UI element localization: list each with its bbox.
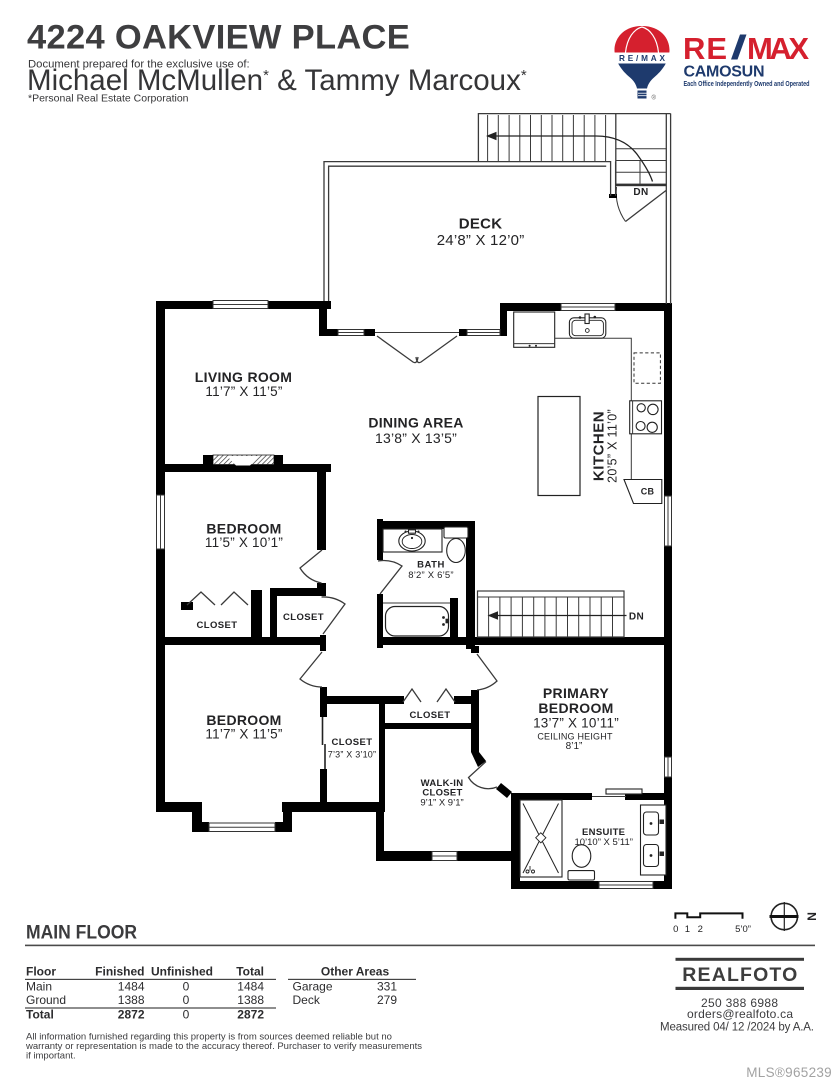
svg-text:N: N — [805, 912, 819, 921]
svg-text:Total: Total — [236, 965, 264, 979]
svg-text:CLOSET: CLOSET — [332, 737, 373, 748]
svg-text:CEILING HEIGHT: CEILING HEIGHT — [537, 732, 613, 742]
svg-text:Floor: Floor — [26, 965, 56, 979]
svg-text:1388: 1388 — [118, 993, 145, 1007]
svg-text:Unfinished: Unfinished — [151, 965, 213, 979]
svg-text:DN: DN — [629, 612, 644, 623]
svg-text:331: 331 — [377, 980, 397, 994]
svg-text:7’3” X 3’10”: 7’3” X 3’10” — [328, 750, 376, 760]
svg-text:MAIN FLOOR: MAIN FLOOR — [26, 923, 137, 944]
svg-text:0: 0 — [183, 980, 190, 994]
svg-text:8’1”: 8’1” — [566, 741, 583, 752]
svg-text:DN: DN — [633, 187, 648, 198]
svg-text:LIVING ROOM: LIVING ROOM — [195, 369, 292, 385]
svg-text:Ground: Ground — [26, 993, 66, 1007]
svg-text:Each Office Independently Owne: Each Office Independently Owned and Oper… — [684, 81, 810, 88]
svg-text:orders@realfoto.ca: orders@realfoto.ca — [687, 1007, 793, 1021]
svg-text:Measured 04/ 12 /2024 by A.A.: Measured 04/ 12 /2024 by A.A. — [660, 1022, 814, 1034]
svg-text:BATH: BATH — [417, 560, 445, 571]
svg-text:REALFOTO: REALFOTO — [682, 964, 797, 986]
svg-text:24’8” X 12’0”: 24’8” X 12’0” — [437, 232, 525, 249]
svg-text:Main: Main — [26, 980, 52, 994]
svg-text:0: 0 — [673, 924, 678, 935]
svg-text:Garage: Garage — [293, 980, 333, 994]
svg-text:1388: 1388 — [237, 993, 264, 1007]
svg-text:®: ® — [652, 95, 657, 102]
svg-text:2872: 2872 — [118, 1008, 145, 1022]
svg-text:11’7” X 11’5”: 11’7” X 11’5” — [205, 727, 282, 742]
svg-text:5’0”: 5’0” — [735, 924, 751, 935]
svg-text:9’1” X 9’1”: 9’1” X 9’1” — [420, 798, 463, 809]
svg-text:MLS®965239: MLS®965239 — [746, 1065, 832, 1080]
svg-text:2: 2 — [698, 924, 703, 935]
svg-text:RE: RE — [683, 31, 727, 66]
svg-text:Other Areas: Other Areas — [321, 965, 390, 979]
svg-text:8’2” X 6’5”: 8’2” X 6’5” — [408, 570, 454, 581]
svg-text:DINING AREA: DINING AREA — [368, 415, 463, 431]
svg-text:11’7” X 11’5”: 11’7” X 11’5” — [205, 384, 282, 399]
svg-text:4224 OAKVIEW PLACE: 4224 OAKVIEW PLACE — [27, 19, 410, 57]
svg-text:13’8” X 13’5”: 13’8” X 13’5” — [375, 430, 457, 446]
svg-text:CLOSET: CLOSET — [197, 620, 238, 631]
svg-text:MAX: MAX — [747, 31, 809, 66]
svg-text:1484: 1484 — [237, 980, 264, 994]
svg-text:Finished: Finished — [95, 965, 144, 979]
svg-text:0: 0 — [183, 1008, 190, 1022]
svg-text:CLOSET: CLOSET — [410, 710, 451, 721]
svg-text:if important.: if important. — [26, 1051, 76, 1062]
svg-text:Deck: Deck — [293, 993, 321, 1007]
svg-text:13’7” X 10’11”: 13’7” X 10’11” — [533, 716, 619, 731]
svg-text:10’10” X 5’11”: 10’10” X 5’11” — [574, 837, 632, 848]
svg-text:Total: Total — [26, 1008, 54, 1022]
svg-text:BEDROOM: BEDROOM — [538, 700, 613, 716]
svg-text:11’5” X 10’1”: 11’5” X 10’1” — [205, 535, 283, 550]
svg-text:0: 0 — [183, 993, 190, 1007]
svg-text:1: 1 — [685, 924, 690, 935]
svg-text:CAMOSUN: CAMOSUN — [684, 64, 766, 81]
svg-text:*Personal Real Estate Corporat: *Personal Real Estate Corporation — [28, 93, 189, 105]
svg-text:warranty or representation is: warranty or representation is made to th… — [25, 1041, 422, 1052]
svg-text:2872: 2872 — [237, 1008, 264, 1022]
svg-text:279: 279 — [377, 993, 397, 1007]
svg-text:DECK: DECK — [459, 216, 503, 233]
svg-text:20’5” X 11’0”: 20’5” X 11’0” — [606, 409, 620, 483]
svg-text:1484: 1484 — [118, 980, 145, 994]
svg-text:CLOSET: CLOSET — [283, 612, 324, 623]
svg-text:CB: CB — [641, 487, 655, 497]
svg-text:PRIMARY: PRIMARY — [543, 685, 610, 701]
